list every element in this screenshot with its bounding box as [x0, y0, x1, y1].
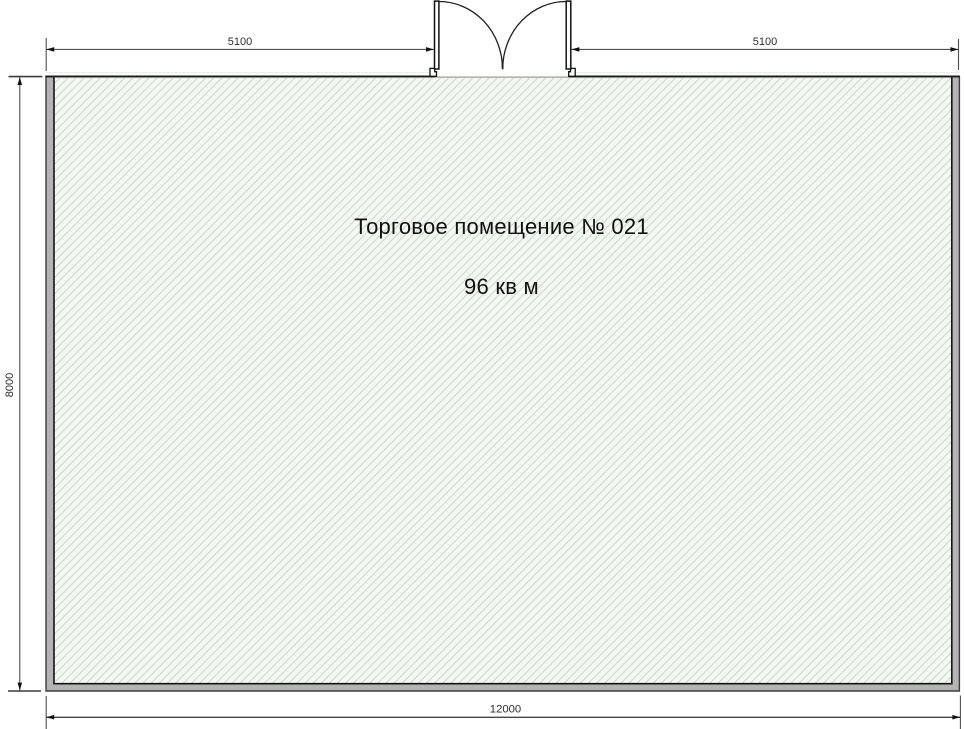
svg-text:Торговое помещение № 021: Торговое помещение № 021 [354, 214, 649, 239]
svg-text:5100: 5100 [228, 36, 252, 48]
svg-text:12000: 12000 [490, 704, 521, 716]
svg-text:96 кв м: 96 кв м [464, 274, 539, 299]
svg-text:8000: 8000 [4, 373, 16, 397]
svg-text:5100: 5100 [753, 36, 777, 48]
